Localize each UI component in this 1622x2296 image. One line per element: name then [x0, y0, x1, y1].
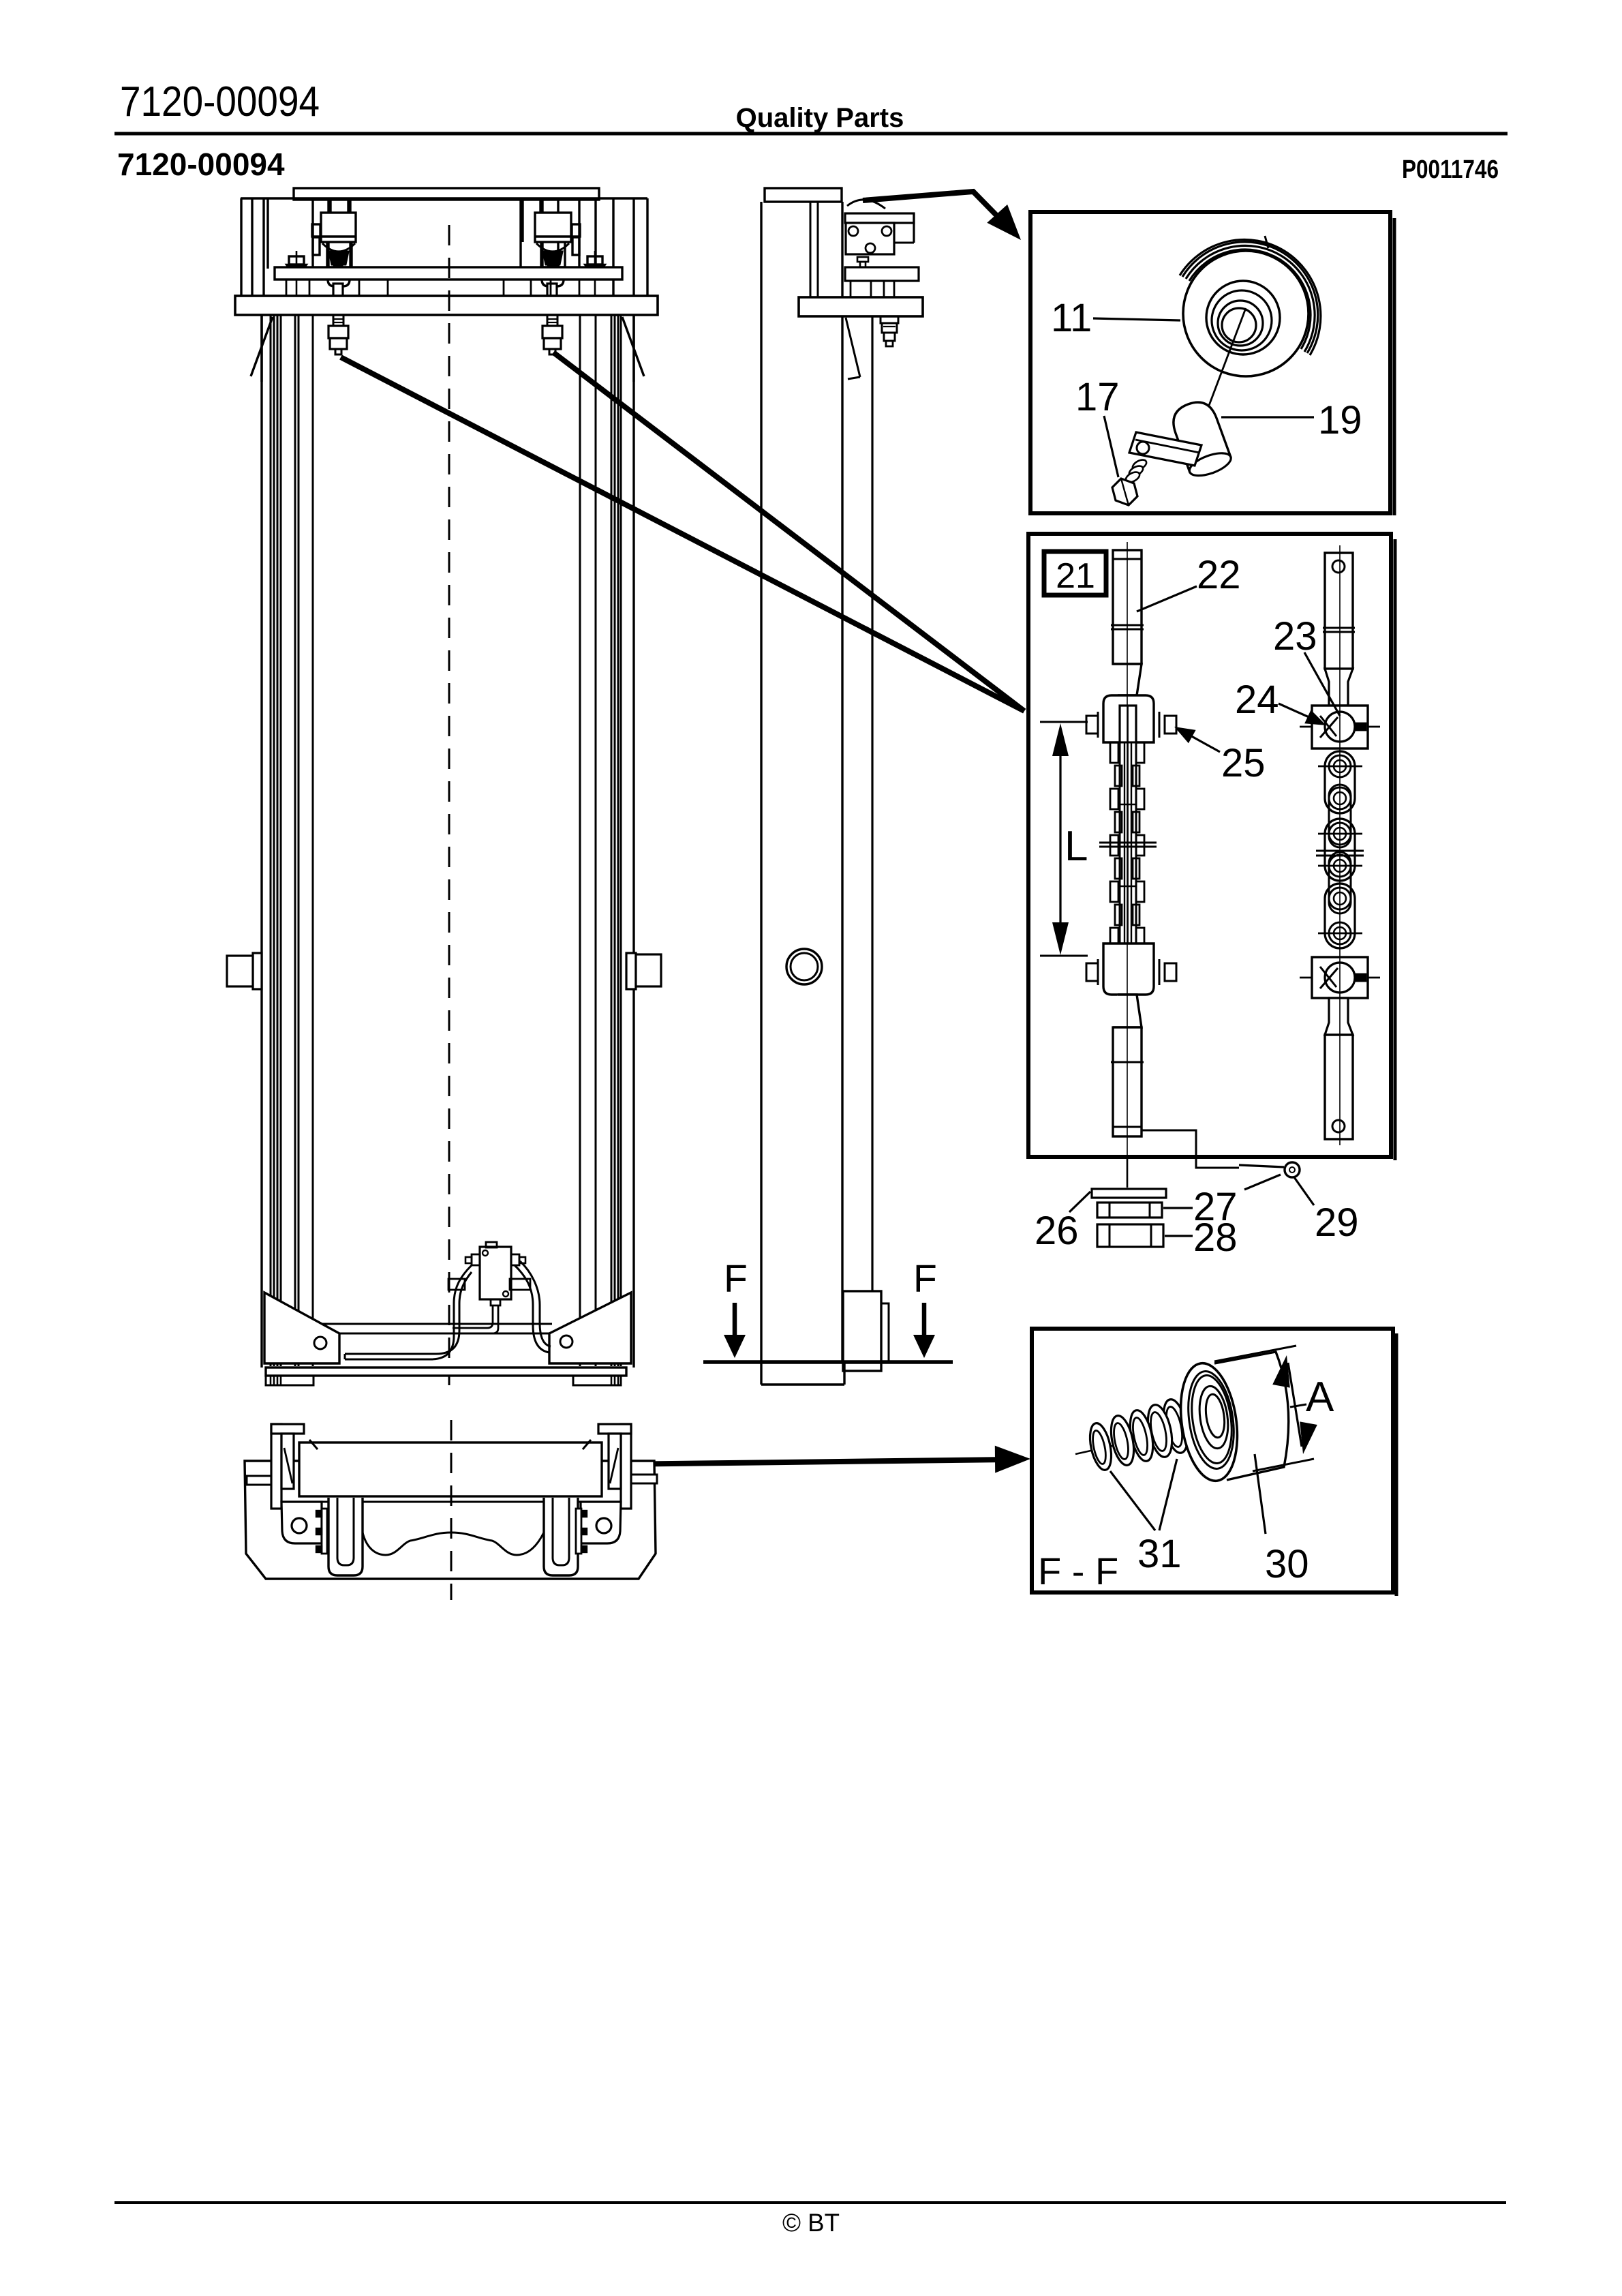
svg-text:22: 22 [1197, 553, 1241, 597]
svg-text:© BT: © BT [782, 2209, 840, 2237]
svg-text:17: 17 [1075, 375, 1120, 419]
svg-text:26: 26 [1035, 1209, 1079, 1253]
svg-text:F: F [724, 1257, 748, 1301]
svg-text:23: 23 [1273, 614, 1317, 659]
svg-text:Quality Parts: Quality Parts [736, 103, 904, 133]
svg-text:25: 25 [1221, 741, 1266, 785]
svg-text:A: A [1306, 1374, 1334, 1421]
svg-text:19: 19 [1318, 398, 1362, 442]
svg-text:31: 31 [1137, 1532, 1182, 1576]
svg-text:30: 30 [1265, 1542, 1309, 1586]
svg-text:28: 28 [1193, 1215, 1238, 1260]
svg-text:7120-00094: 7120-00094 [120, 78, 320, 125]
svg-text:P0011746: P0011746 [1402, 155, 1499, 184]
svg-text:11: 11 [1051, 296, 1092, 340]
svg-text:F: F [913, 1257, 937, 1301]
svg-text:21: 21 [1056, 556, 1095, 596]
svg-text:29: 29 [1315, 1200, 1359, 1245]
svg-text:24: 24 [1235, 678, 1279, 722]
svg-text:L: L [1065, 823, 1088, 870]
svg-text:F - F: F - F [1038, 1550, 1118, 1592]
svg-text:7120-00094: 7120-00094 [117, 147, 285, 182]
